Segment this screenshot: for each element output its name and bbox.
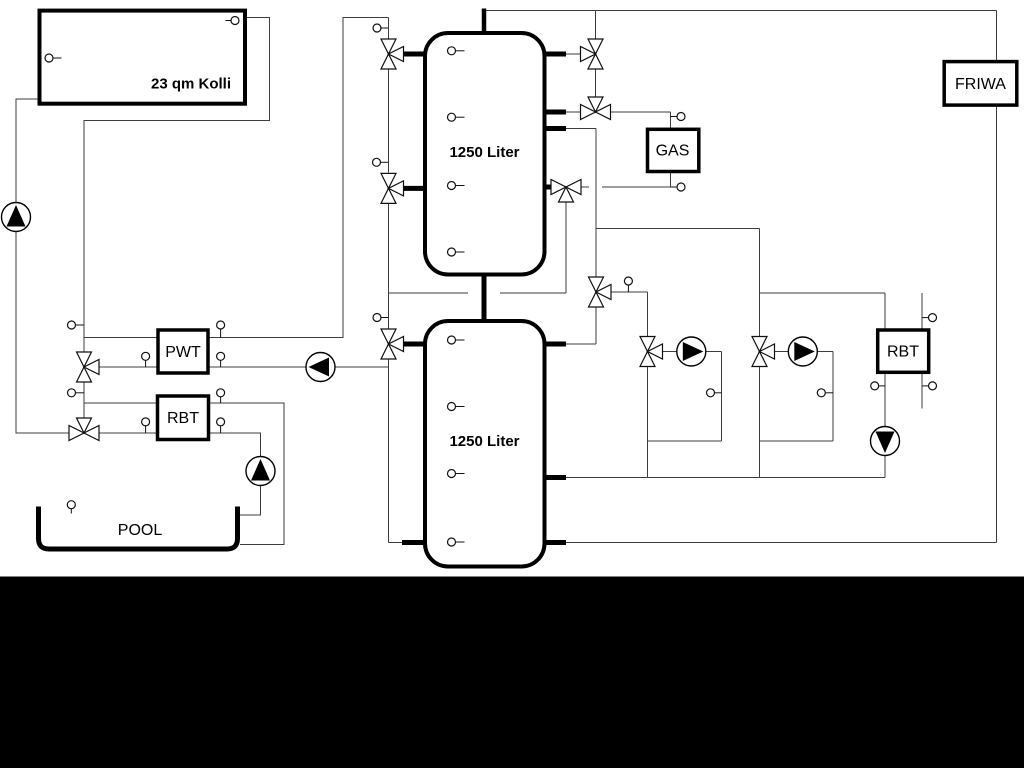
svg-text:PWT: PWT xyxy=(165,344,201,361)
svg-text:23 qm Kolli: 23 qm Kolli xyxy=(151,76,231,93)
svg-text:1250 Liter: 1250 Liter xyxy=(449,433,519,450)
svg-text:1250 Liter: 1250 Liter xyxy=(449,144,519,161)
svg-text:RBT: RBT xyxy=(167,410,199,427)
svg-text:RBT: RBT xyxy=(887,344,919,361)
svg-text:GAS: GAS xyxy=(656,143,690,160)
svg-text:POOL: POOL xyxy=(118,522,163,539)
svg-text:FRIWA: FRIWA xyxy=(955,76,1006,93)
